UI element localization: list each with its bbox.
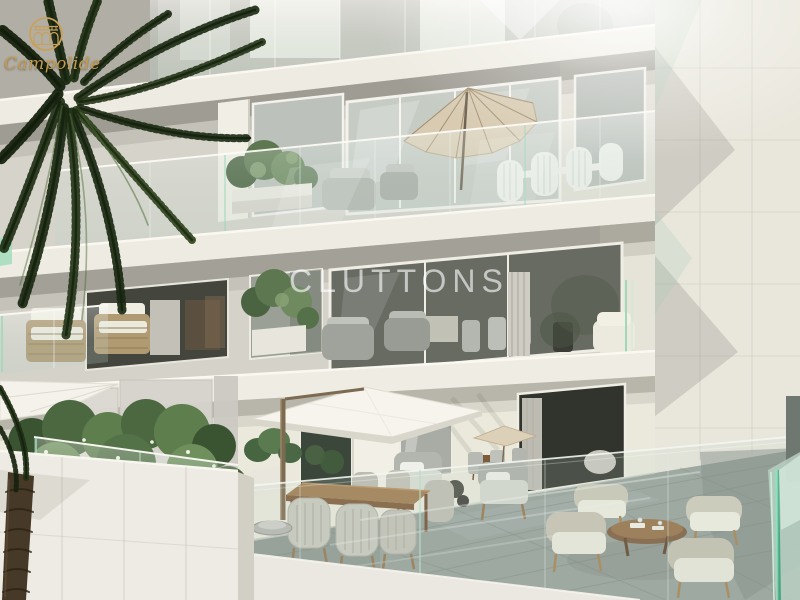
foreground-terrace [0,376,254,600]
developer-logo: Campolide [2,6,132,92]
render-canvas: CLUTTONS Campolide [0,0,800,600]
agency-watermark: CLUTTONS [289,263,509,300]
developer-logo-text: Campolide [4,54,101,74]
glass-balustrade [0,305,108,374]
foreground-wall [0,451,254,600]
